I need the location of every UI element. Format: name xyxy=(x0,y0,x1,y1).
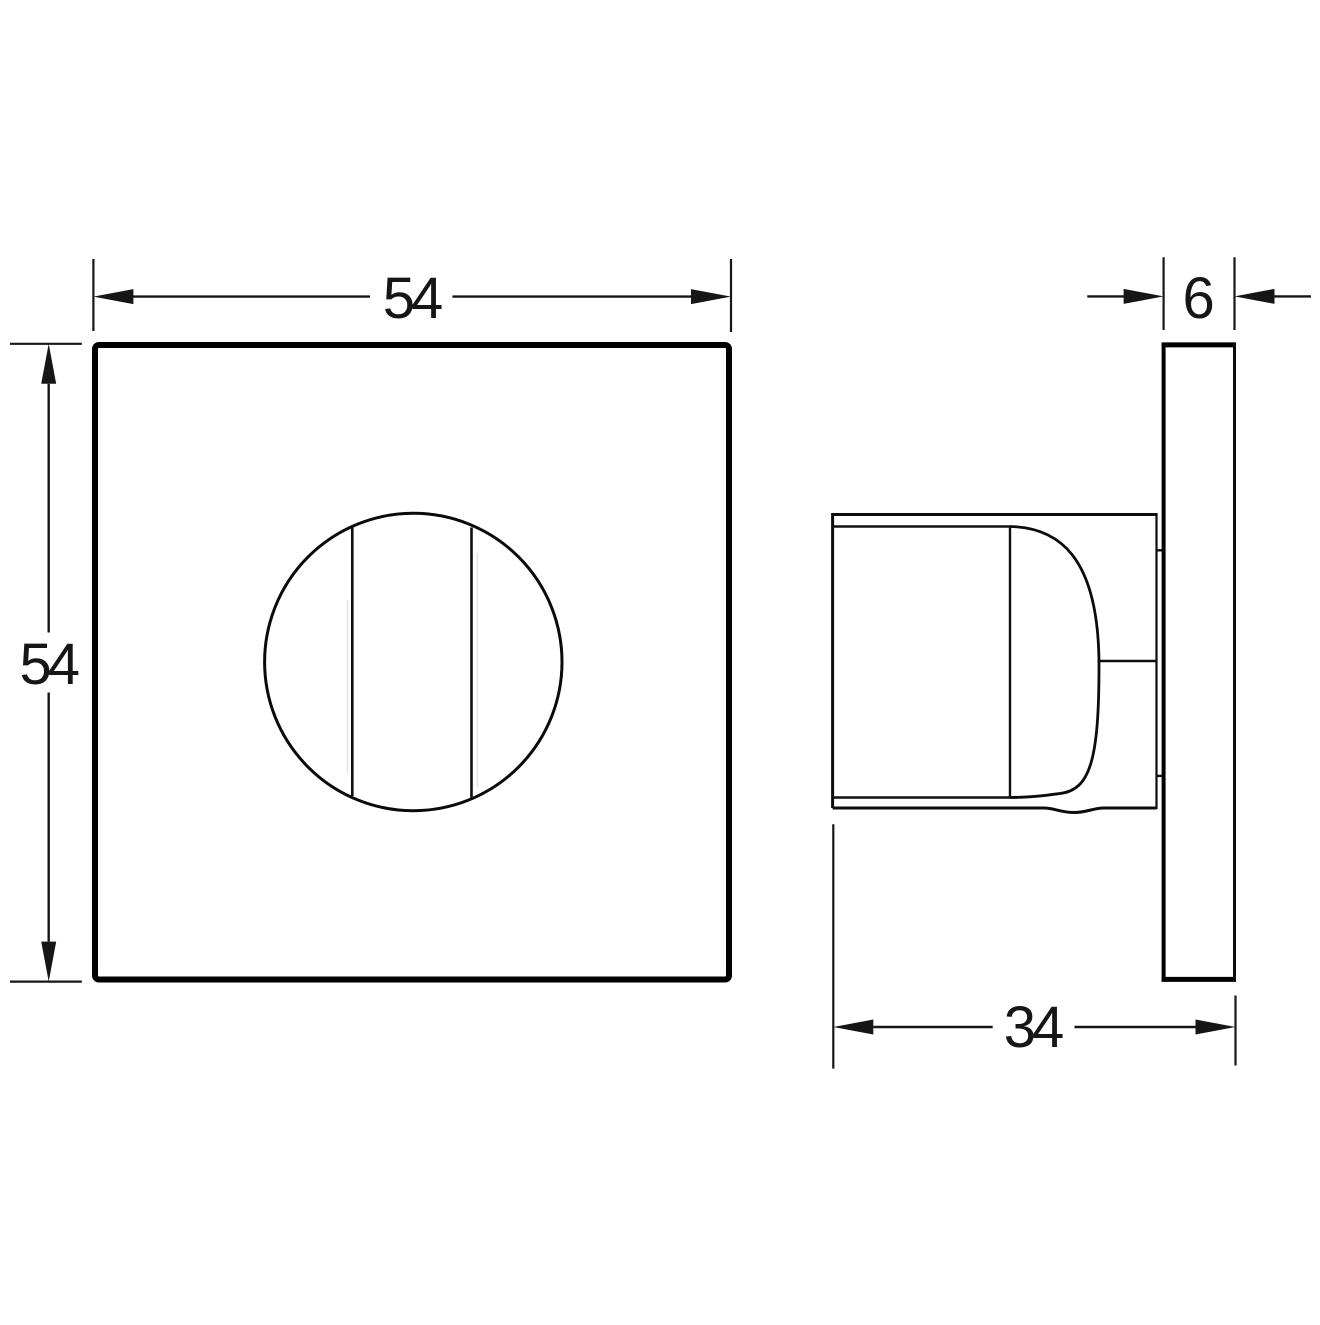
svg-text:34: 34 xyxy=(1004,995,1063,1060)
svg-text:54: 54 xyxy=(20,632,79,697)
svg-text:6: 6 xyxy=(1182,266,1214,331)
svg-text:54: 54 xyxy=(383,266,442,331)
